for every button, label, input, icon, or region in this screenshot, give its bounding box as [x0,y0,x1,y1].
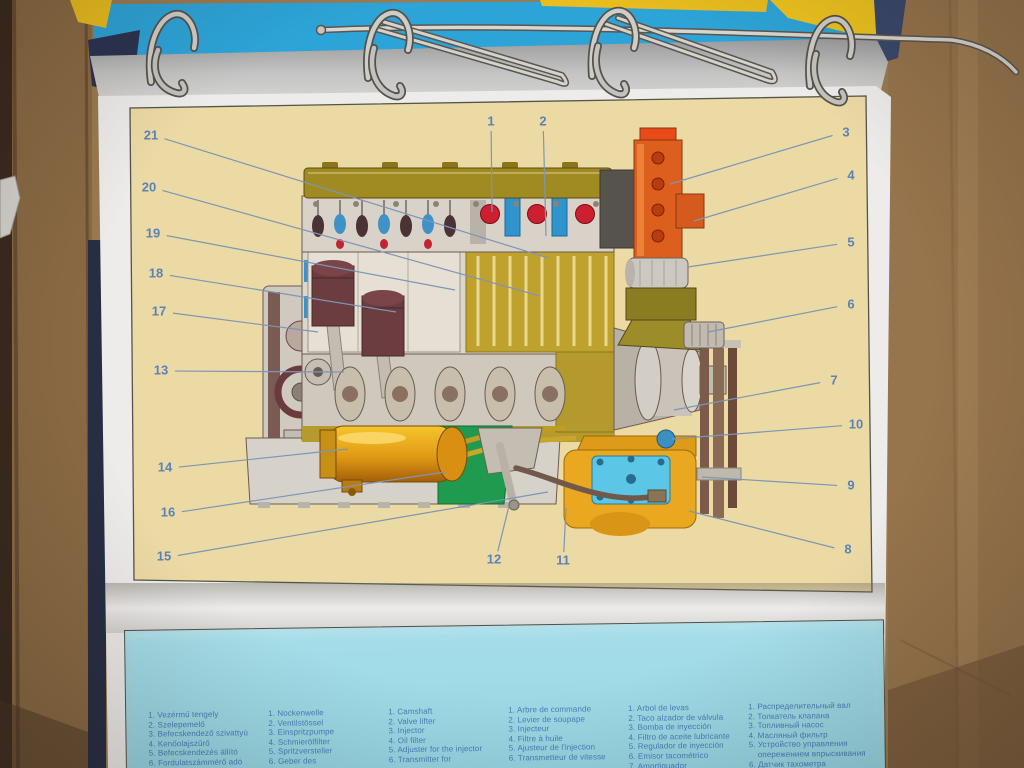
legend-column-hu: 1. Vezérmű tengely2. Szelepemelő3. Befec… [148,709,269,768]
callout-number: 12 [487,551,501,566]
legend-item: 6. Fordulatszámmérő adó [149,757,269,768]
fuel-line-fitting [648,490,666,502]
callout-number: 6 [847,296,854,311]
driveshaft-splines [697,340,741,518]
legend-item: 6. Geber des [269,755,389,766]
legend-column-fr: 1. Arbre de commande2. Levier de soupape… [508,704,629,768]
cylinder-head [302,196,614,252]
injection-adjuster [625,258,688,288]
callout-number: 1 [487,113,494,128]
callout-number: 14 [158,459,173,474]
speed-sender [684,322,724,348]
callout-number: 16 [161,504,175,519]
callout-number: 10 [849,416,863,431]
fuel-pump [564,436,696,536]
callout-leader-line [491,131,492,212]
callout-number: 17 [152,303,166,318]
legend-item: 1. Распределительный вал [748,701,868,712]
legend-item-continuation: опережением впрыскивания [749,749,869,760]
callout-number: 18 [149,265,163,280]
callout-number: 20 [142,179,156,194]
callout-number: 8 [844,541,851,556]
legend-item: 6. Transmetteur de vitesse [509,752,629,763]
callout-number: 21 [144,127,158,142]
legend-column-de: 1. Nockenwelle2. Ventilstössel3. Einspri… [268,707,389,768]
callout-number: 11 [556,552,570,567]
callout-number: 4 [847,167,855,182]
callout-number: 5 [847,234,854,249]
callout-number: 13 [154,362,168,377]
legend-column-en: 1. Camshaft2. Valve lifter3. Injector4. … [388,706,509,768]
legend-item: 6. Transmitter for [389,754,509,765]
callout-number: 2 [539,113,546,128]
legend-panel: 1. Vezérmű tengely2. Szelepemelő3. Befec… [124,619,886,768]
intake-manifold [600,170,636,248]
photo-scene: 212019181713141615123456710981211 [0,0,1024,768]
legend-item: 7. Amortiguador [629,760,749,768]
callout-number: 7 [830,372,837,387]
callout-number: 15 [157,548,171,563]
callout-number: 9 [847,477,854,492]
legend-column-ru: 1. Распределительный вал2. Толкатель кла… [748,701,869,768]
legend-column-es: 1. Arbol de levas2. Taco alzador de válv… [628,702,749,768]
legend-columns: 1. Vezérmű tengely2. Szelepemelő3. Befec… [125,620,885,768]
legend-item: 6. Датчик тахометра [749,758,869,768]
callout-number: 19 [146,225,160,240]
callout-number: 3 [842,124,849,139]
engine-illustration [246,128,741,536]
